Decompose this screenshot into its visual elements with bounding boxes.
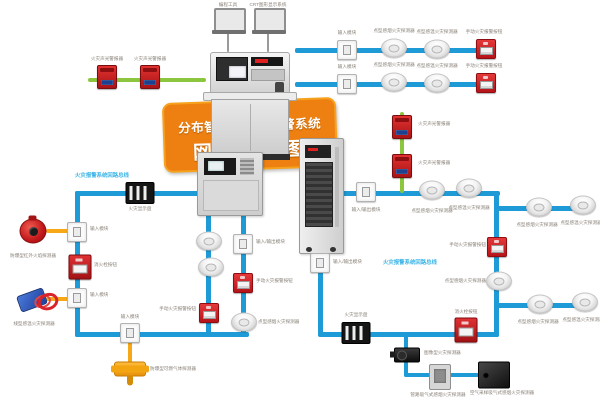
led-digits	[255, 59, 268, 63]
device-label: 点型感温火灾探测器	[416, 29, 457, 35]
console-panel	[210, 52, 290, 94]
laptop-screen	[214, 8, 246, 32]
network-diagram: 分布智能型火灾报警系统 网络总线图 火灾声光警报器火灾声光警报器编程工具CRT图…	[0, 0, 600, 400]
device-label: 手动火灾报警按钮	[466, 63, 503, 69]
panel-door	[203, 180, 259, 211]
smoke-detector-icon	[486, 272, 512, 291]
device-label: 输入模块	[121, 314, 139, 320]
hydrant-button-icon	[455, 318, 478, 343]
device-label: 点型感烟火灾探测器	[516, 222, 557, 228]
smoke-detector-icon	[381, 39, 407, 58]
floor-control-cabinet	[299, 138, 344, 254]
device-label: 点型感温火灾探测器	[416, 63, 457, 69]
device-label: CRT图形显示系统	[250, 2, 287, 8]
panel-screen	[204, 158, 236, 175]
device-label: 输入/输出模块	[333, 259, 362, 265]
manual-call-point-icon	[487, 237, 507, 257]
cabinet-rack	[305, 162, 333, 227]
panel-grille	[240, 158, 254, 175]
device-label: 消火栓按钮	[94, 262, 117, 268]
device-label: 点型感烟火灾探测器	[411, 208, 452, 214]
sound-light-alarm-icon	[392, 154, 412, 178]
device-label: 消火栓按钮	[455, 309, 478, 315]
sound-light-alarm-icon	[97, 65, 117, 89]
device-label: 空气采样吸气式感烟火灾探测器	[470, 390, 534, 396]
sound-light-alarm-icon	[392, 115, 412, 139]
device-label: 点型感烟火灾探测器	[517, 319, 558, 325]
device-label: 火灾声光警报器	[418, 121, 450, 127]
cabinet-wheel	[330, 247, 336, 252]
cabinet-display	[305, 145, 331, 158]
device-label: 手动火灾报警按钮	[466, 29, 503, 35]
device-label: 点型感烟火灾探测器	[258, 319, 299, 325]
device-label: 输入/输出模块	[256, 239, 285, 245]
device-label: 火灾显示盘	[129, 206, 152, 212]
device-label: 火灾声光警报器	[134, 56, 166, 62]
device-label: 点型感温火灾探测器	[448, 205, 489, 211]
flame-detector-icon	[20, 219, 47, 244]
device-label: 输入模块	[338, 64, 356, 70]
console-monitor	[216, 57, 248, 81]
laptop-base	[252, 30, 286, 34]
aspirating-sampling-panel-icon	[429, 364, 451, 390]
input-module-icon	[120, 323, 140, 343]
heat-detector-icon	[570, 196, 596, 215]
console-monitor-screen	[229, 66, 246, 78]
device-label: 点型感温火灾探测器	[562, 317, 600, 323]
device-label: 火灾声光警报器	[91, 56, 123, 62]
heat-detector-icon	[424, 74, 450, 93]
hydrant-button-icon	[69, 255, 92, 280]
smoke-detector-icon	[198, 258, 224, 277]
wall-control-panel	[197, 152, 263, 216]
bus-wire	[494, 191, 499, 337]
linear-heat-detector-icon	[16, 287, 48, 313]
fire-display-panel-icon	[342, 322, 371, 344]
smoke-detector-icon	[526, 198, 552, 217]
device-label: 手动火灾报警按钮	[159, 306, 196, 312]
io-module-icon	[356, 182, 376, 202]
device-label: 管路吸气式感烟火灾探测器	[410, 392, 465, 398]
smoke-detector-icon	[527, 295, 553, 314]
control-console	[203, 48, 297, 160]
smoke-detector-icon	[381, 73, 407, 92]
device-label: 火灾显示盘	[345, 312, 368, 318]
console-keys	[251, 69, 285, 81]
device-label: 手动火灾报警按钮	[449, 242, 486, 248]
device-label: 线型感温火灾探测器	[13, 321, 54, 327]
image-fire-detector-icon	[394, 348, 420, 363]
io-module-icon	[310, 253, 330, 273]
device-label: 输入模块	[90, 292, 108, 298]
gas-detector-icon	[114, 362, 146, 377]
heat-detector-icon	[456, 179, 482, 198]
bus-wire	[75, 332, 249, 337]
fire-display-panel-icon	[126, 182, 155, 204]
laptop-graphic-display	[252, 8, 286, 34]
device-label: 编程工具	[219, 2, 237, 8]
smoke-detector-icon	[419, 181, 445, 200]
loop-bus-title: 火灾报警系统回路总线	[75, 173, 129, 179]
device-label: 防爆型红外火焰探测器	[10, 253, 56, 259]
io-module-icon	[337, 40, 357, 60]
cabinet-grille	[335, 147, 339, 227]
device-label: 火灾声光警报器	[418, 160, 450, 166]
device-label: 点型感烟火灾探测器	[373, 62, 414, 68]
laptop-base	[212, 30, 246, 34]
device-label: 手动火灾报警按钮	[256, 278, 293, 284]
smoke-detector-icon	[231, 313, 257, 332]
smoke-detector-icon	[196, 232, 222, 251]
heat-detector-icon	[424, 40, 450, 59]
device-label: 点型感温火灾探测器	[560, 220, 600, 226]
device-label: 图像型火灾探测器	[424, 350, 461, 356]
manual-call-point-icon	[199, 303, 219, 323]
input-module-icon	[67, 288, 87, 308]
manual-call-point-icon	[233, 273, 253, 293]
sound-light-alarm-icon	[140, 65, 160, 89]
manual-call-point-icon	[476, 39, 496, 59]
device-label: 输入模块	[90, 226, 108, 232]
loop-bus-title: 火灾报警系统回路总线	[383, 260, 437, 266]
laptop-screen	[254, 8, 286, 32]
aspirating-detector-unit-icon	[478, 362, 510, 389]
device-label: 点型感烟火灾探测器	[373, 28, 414, 34]
device-label: 输入/输出模块	[352, 207, 381, 213]
input-module-icon	[67, 222, 87, 242]
cabinet-wheel	[306, 247, 312, 252]
io-module-icon	[337, 74, 357, 94]
device-label: 输入模块	[338, 30, 356, 36]
device-label: 防爆型可燃气体探测器	[150, 366, 196, 372]
manual-call-point-icon	[476, 73, 496, 93]
heat-detector-icon	[572, 293, 598, 312]
laptop-programming-tool	[212, 8, 246, 34]
console-cabinet	[211, 99, 289, 156]
device-label: 点型感烟火灾探测器	[445, 278, 486, 284]
io-module-icon	[233, 234, 253, 254]
